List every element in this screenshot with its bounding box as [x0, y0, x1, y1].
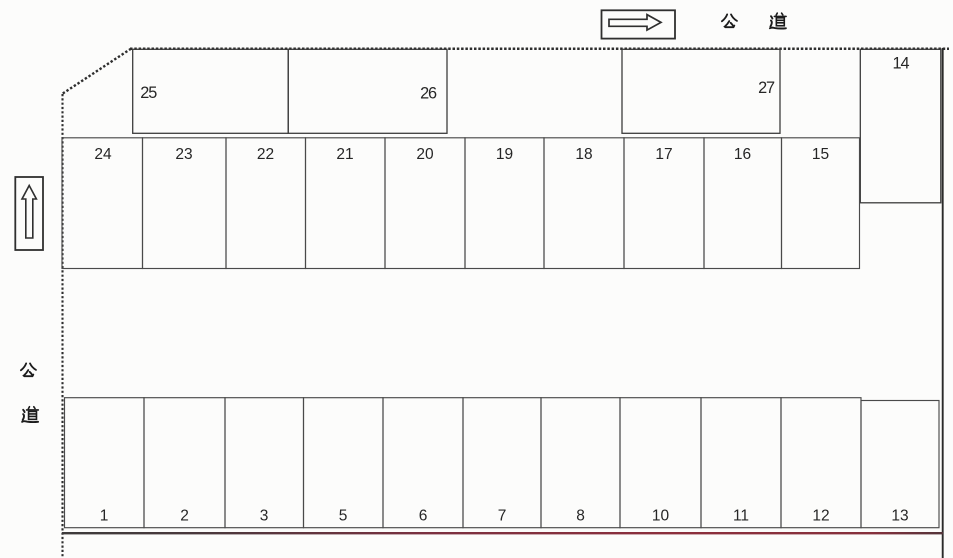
svg-text:1: 1 [100, 508, 109, 525]
svg-text:21: 21 [336, 146, 353, 163]
svg-text:12: 12 [812, 508, 829, 525]
svg-text:20: 20 [416, 146, 434, 163]
svg-text:13: 13 [891, 508, 908, 525]
svg-text:8: 8 [576, 508, 585, 525]
svg-text:23: 23 [175, 146, 192, 163]
svg-text:3: 3 [260, 508, 269, 525]
svg-text:10: 10 [652, 508, 670, 525]
svg-text:19: 19 [496, 146, 513, 163]
svg-text:6: 6 [419, 508, 428, 525]
svg-text:11: 11 [733, 508, 749, 525]
svg-text:27: 27 [758, 79, 775, 97]
svg-text:5: 5 [339, 508, 348, 525]
svg-text:2: 2 [180, 508, 189, 525]
svg-text:15: 15 [812, 146, 829, 163]
svg-text:7: 7 [498, 508, 507, 525]
svg-text:14: 14 [893, 55, 910, 73]
svg-text:17: 17 [655, 146, 672, 163]
svg-text:26: 26 [420, 85, 437, 103]
svg-text:24: 24 [94, 146, 112, 163]
svg-text:18: 18 [575, 146, 592, 163]
svg-text:16: 16 [734, 146, 751, 163]
svg-text:25: 25 [140, 84, 157, 102]
svg-text:22: 22 [257, 146, 274, 163]
